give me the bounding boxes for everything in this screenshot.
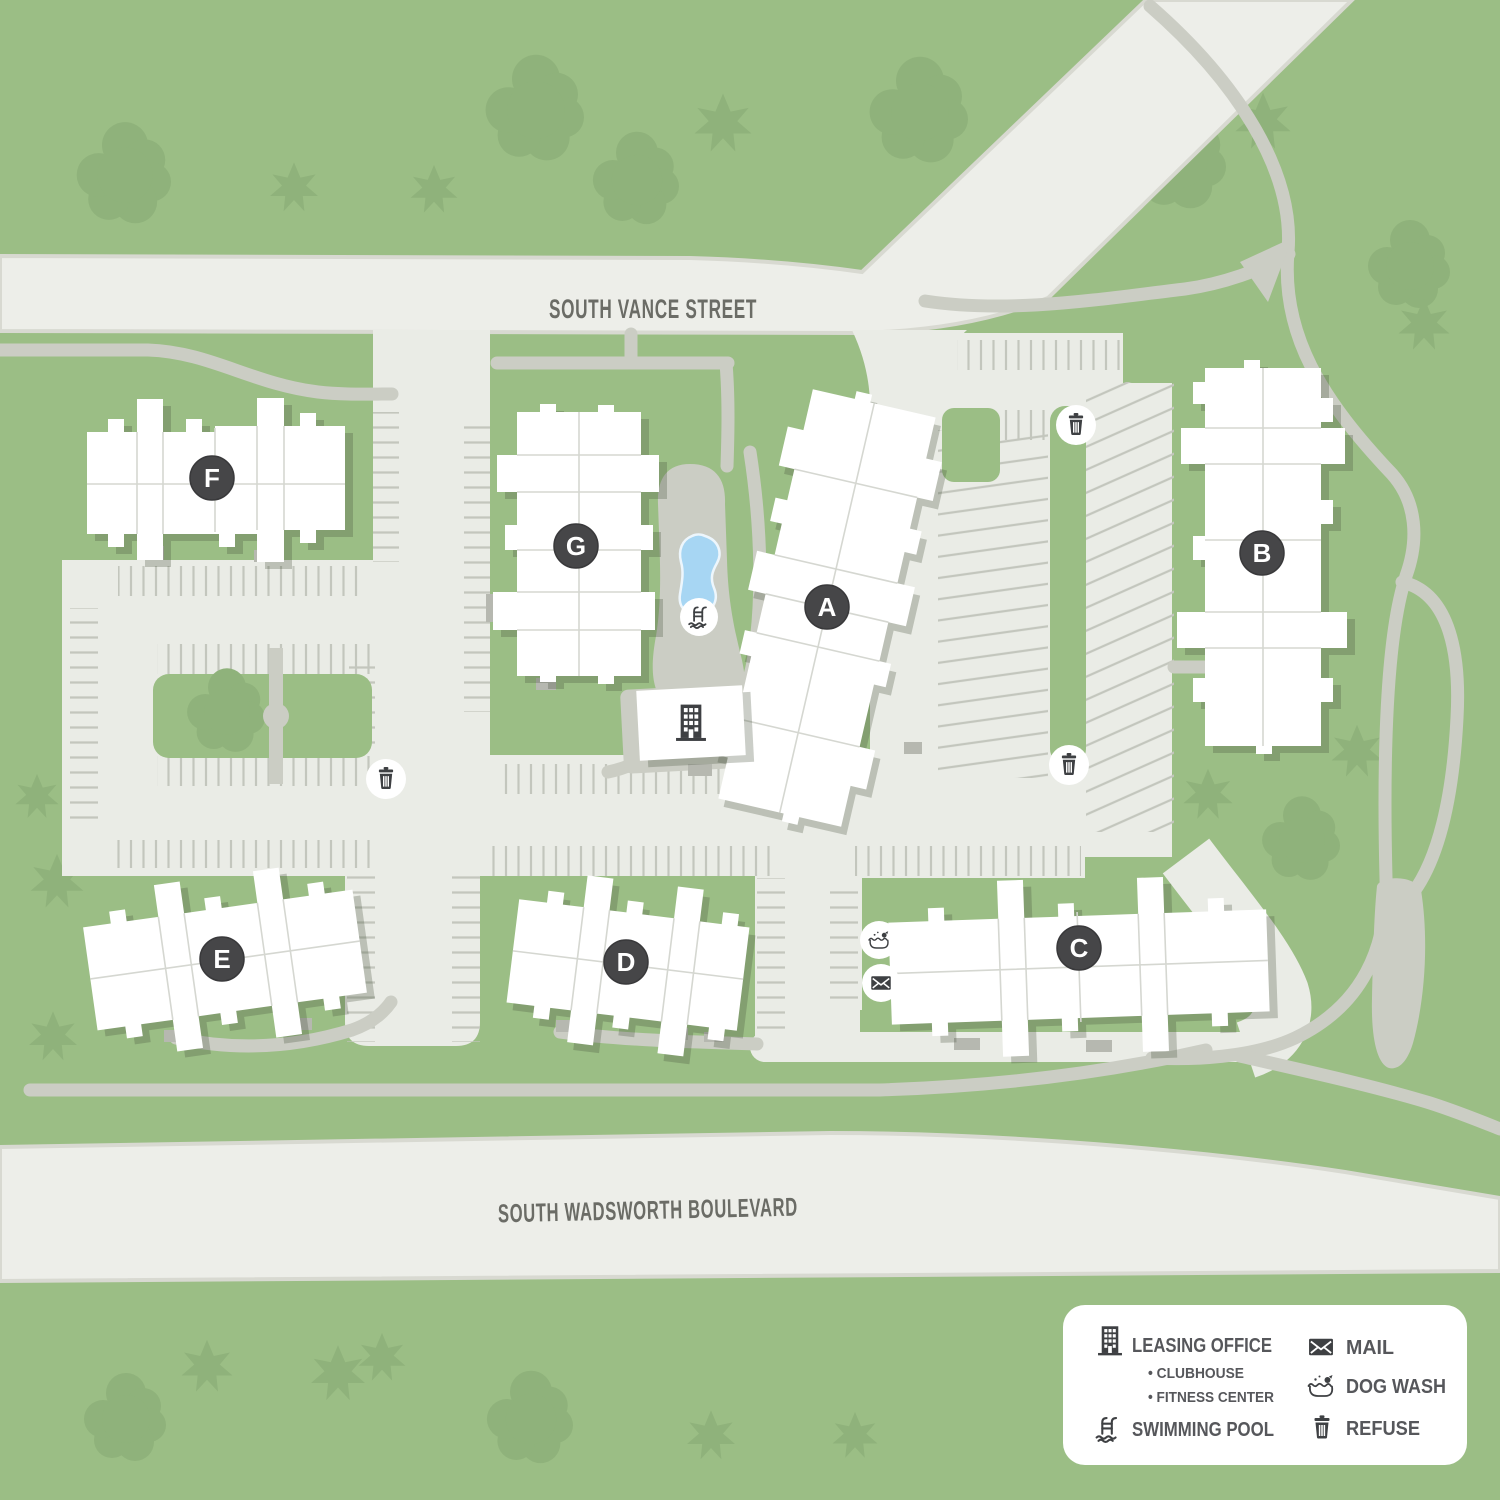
refuse-marker-2 [1049, 745, 1089, 785]
badge-building-c: C [1057, 926, 1101, 970]
legend-clubhouse-label: • CLUBHOUSE [1148, 1366, 1244, 1382]
building-d-label: D [617, 947, 636, 977]
building-g-label: G [566, 531, 586, 561]
dog-wash-marker [860, 921, 898, 959]
site-map-canvas: A B C D E F G [0, 0, 1500, 1500]
legend: LEASING OFFICE • CLUBHOUSE • FITNESS CEN… [1063, 1305, 1467, 1465]
site-map: A B C D E F G [0, 0, 1500, 1500]
badge-building-d: D [604, 940, 648, 984]
building-b-label: B [1253, 538, 1272, 568]
island-circle [263, 703, 289, 729]
badge-building-b: B [1240, 531, 1284, 575]
badge-building-e: E [200, 937, 244, 981]
street-label-south-vance: SOUTH VANCE STREET [549, 294, 757, 324]
building-f-label: F [204, 463, 220, 493]
building-e-label: E [213, 944, 230, 974]
legend-leasing-office-label: LEASING OFFICE [1132, 1335, 1272, 1357]
legend-swimming-pool-label: SWIMMING POOL [1132, 1419, 1274, 1441]
badge-building-g: G [554, 524, 598, 568]
building-a-label: A [818, 592, 837, 622]
mail-marker [862, 964, 900, 1002]
legend-fitness-center-label: • FITNESS CENTER [1148, 1390, 1274, 1406]
refuse-marker-3 [366, 759, 406, 799]
envelope-icon [1309, 1339, 1333, 1356]
legend-mail-label: MAIL [1346, 1337, 1394, 1359]
badge-building-a: A [805, 585, 849, 629]
legend-refuse-label: REFUSE [1346, 1418, 1420, 1440]
building-c-label: C [1070, 933, 1089, 963]
badge-building-f: F [190, 456, 234, 500]
legend-dog-wash-label: DOG WASH [1346, 1376, 1446, 1398]
envelope-icon [871, 976, 891, 990]
refuse-marker-1 [1056, 405, 1096, 445]
pool-marker [680, 598, 718, 636]
